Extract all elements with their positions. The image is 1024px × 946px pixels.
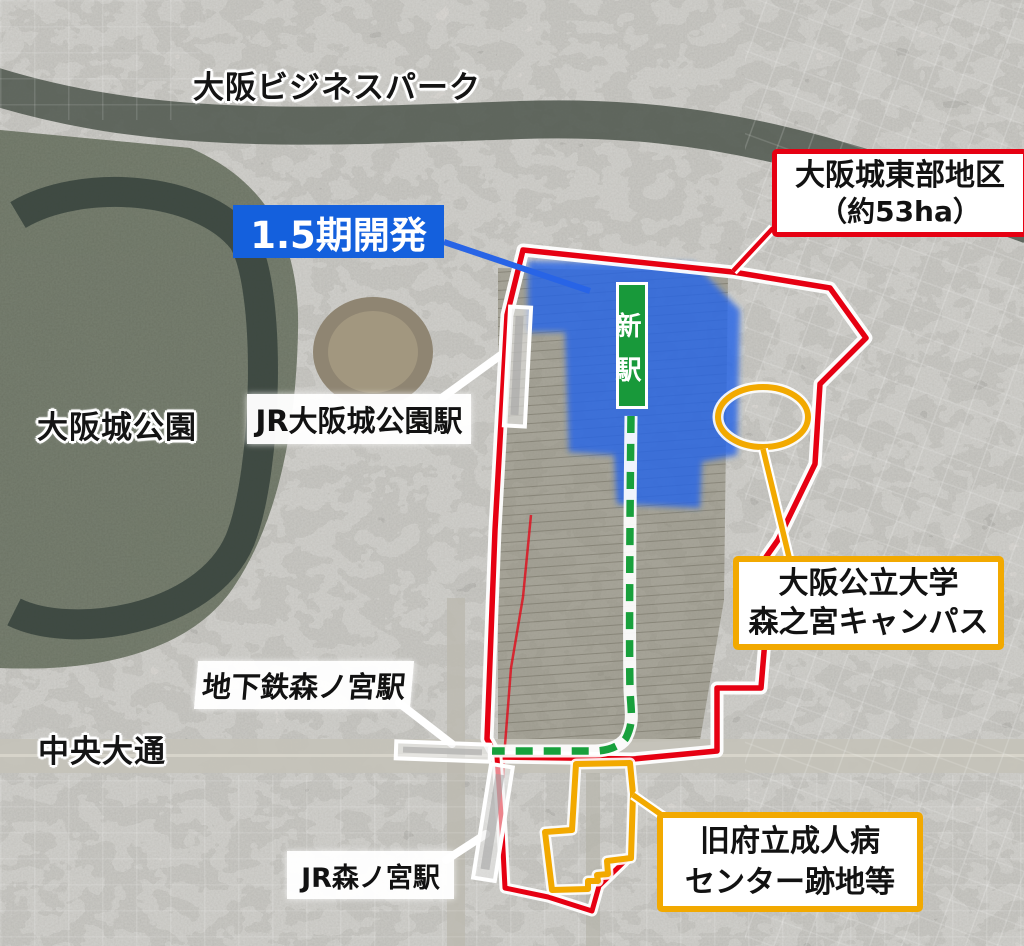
- osaka-business-park-label: 大阪ビジネスパーク: [193, 62, 481, 107]
- subway-morinomiya-platform-marker: [396, 741, 491, 761]
- subway-morinomiya-leader-line: [399, 703, 452, 744]
- hospital-callout-line2: センター跡地等: [685, 862, 895, 903]
- district-callout-line1: 大阪城東部地区: [795, 157, 1005, 195]
- campus-callout: 大阪公立大学 森之宮キャンパス: [733, 556, 1004, 650]
- route-dashed-line: [492, 416, 631, 751]
- jr-loop-line: [503, 515, 531, 778]
- osaka-castle-park-label: 大阪城公園: [37, 402, 197, 447]
- jr-osakajokoen-leader-line: [443, 352, 505, 397]
- new-station-sign: 新駅: [616, 282, 648, 409]
- phase15-development-label: 1.5期開発: [233, 205, 444, 258]
- campus-callout-line2: 森之宮キャンパス: [749, 603, 989, 642]
- hospital-callout-line1: 旧府立成人病: [700, 821, 880, 862]
- satellite-map: 大阪ビジネスパーク 大阪城東部地区 （約53ha） 1.5期開発 新駅 JR大阪…: [0, 0, 1024, 946]
- jr-osakajokoen-platform-marker: [504, 307, 531, 427]
- annotation-overlay: [0, 0, 1024, 946]
- chuo-odori-label: 中央大通: [38, 726, 166, 771]
- subway-morinomiya-station-plate: 地下鉄森ノ宮駅: [194, 661, 414, 709]
- district-callout: 大阪城東部地区 （約53ha）: [772, 149, 1024, 237]
- campus-callout-line1: 大阪公立大学: [779, 564, 959, 603]
- jr-osakajokoen-station-plate: JR大阪城公園駅: [247, 394, 471, 444]
- jr-morinomiya-station-plate: JR森ノ宮駅: [287, 851, 454, 899]
- district-callout-leader: [733, 228, 773, 271]
- route-casing: [492, 416, 631, 751]
- district-callout-line2: （約53ha）: [819, 195, 981, 229]
- hospital-site-callout: 旧府立成人病 センター跡地等: [657, 812, 923, 912]
